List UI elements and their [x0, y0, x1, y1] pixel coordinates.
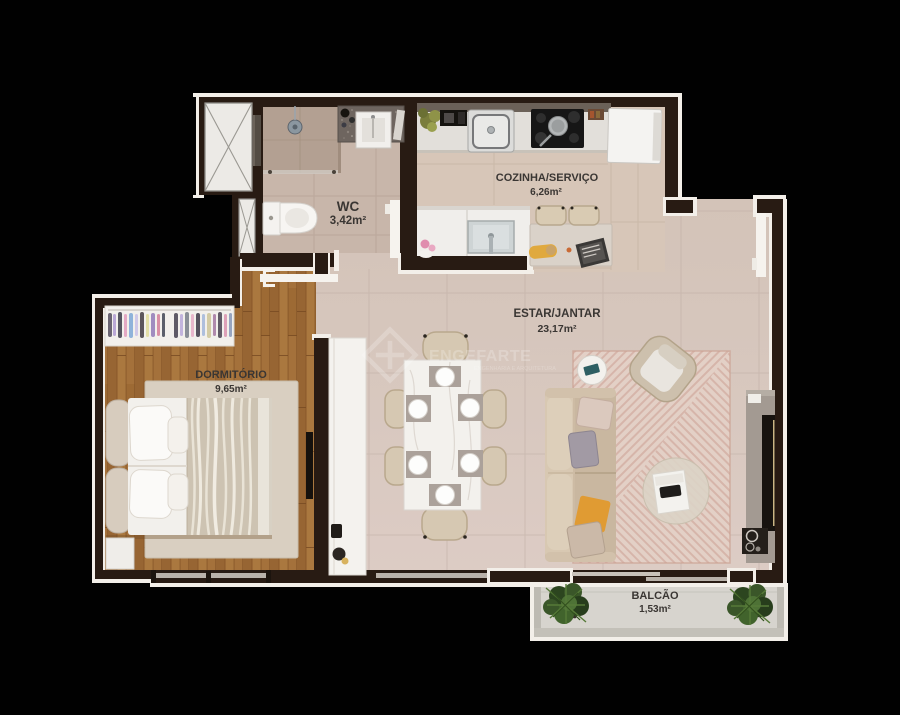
svg-text:3,42m²: 3,42m²	[330, 215, 367, 227]
svg-text:ESTAR/JANTAR: ESTAR/JANTAR	[513, 308, 601, 320]
svg-text:BALCÃO: BALCÃO	[631, 589, 678, 602]
svg-text:6,26m²: 6,26m²	[530, 187, 562, 198]
svg-text:9,65m²: 9,65m²	[215, 384, 247, 395]
svg-text:ENGEFARTE: ENGEFARTE	[429, 348, 531, 365]
svg-text:WC: WC	[337, 199, 360, 214]
svg-text:23,17m²: 23,17m²	[537, 323, 577, 335]
svg-text:ENGENHARIA E ARQUITETURA: ENGENHARIA E ARQUITETURA	[474, 366, 556, 372]
svg-text:DORMITÓRIO: DORMITÓRIO	[195, 368, 267, 381]
svg-text:1,53m²: 1,53m²	[639, 604, 671, 615]
svg-text:COZINHA/SERVIÇO: COZINHA/SERVIÇO	[496, 172, 599, 184]
